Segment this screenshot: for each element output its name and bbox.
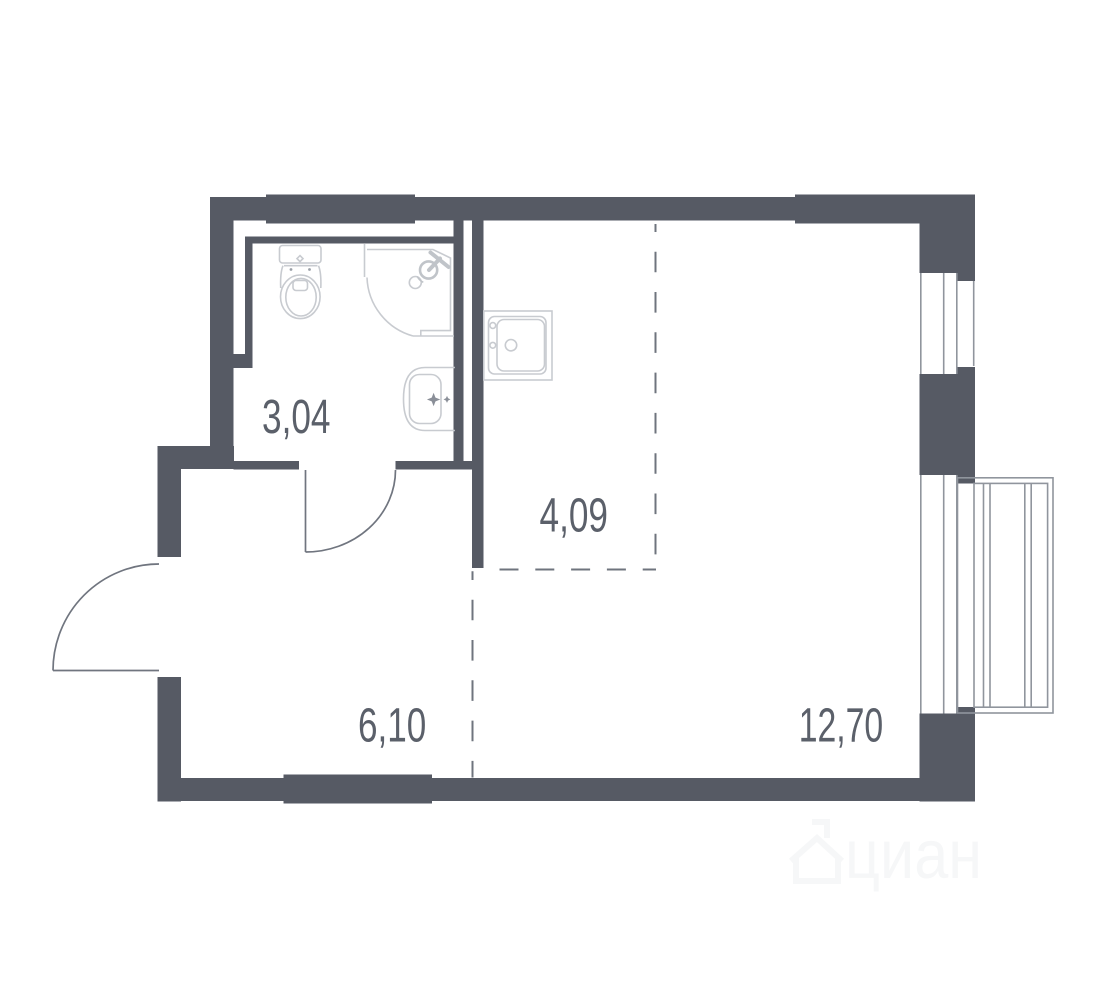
svg-text:циан: циан: [845, 816, 982, 893]
svg-text:4,09: 4,09: [540, 489, 609, 543]
svg-text:6,10: 6,10: [358, 699, 426, 753]
svg-text:3,04: 3,04: [262, 390, 331, 444]
svg-text:12,70: 12,70: [799, 699, 884, 753]
